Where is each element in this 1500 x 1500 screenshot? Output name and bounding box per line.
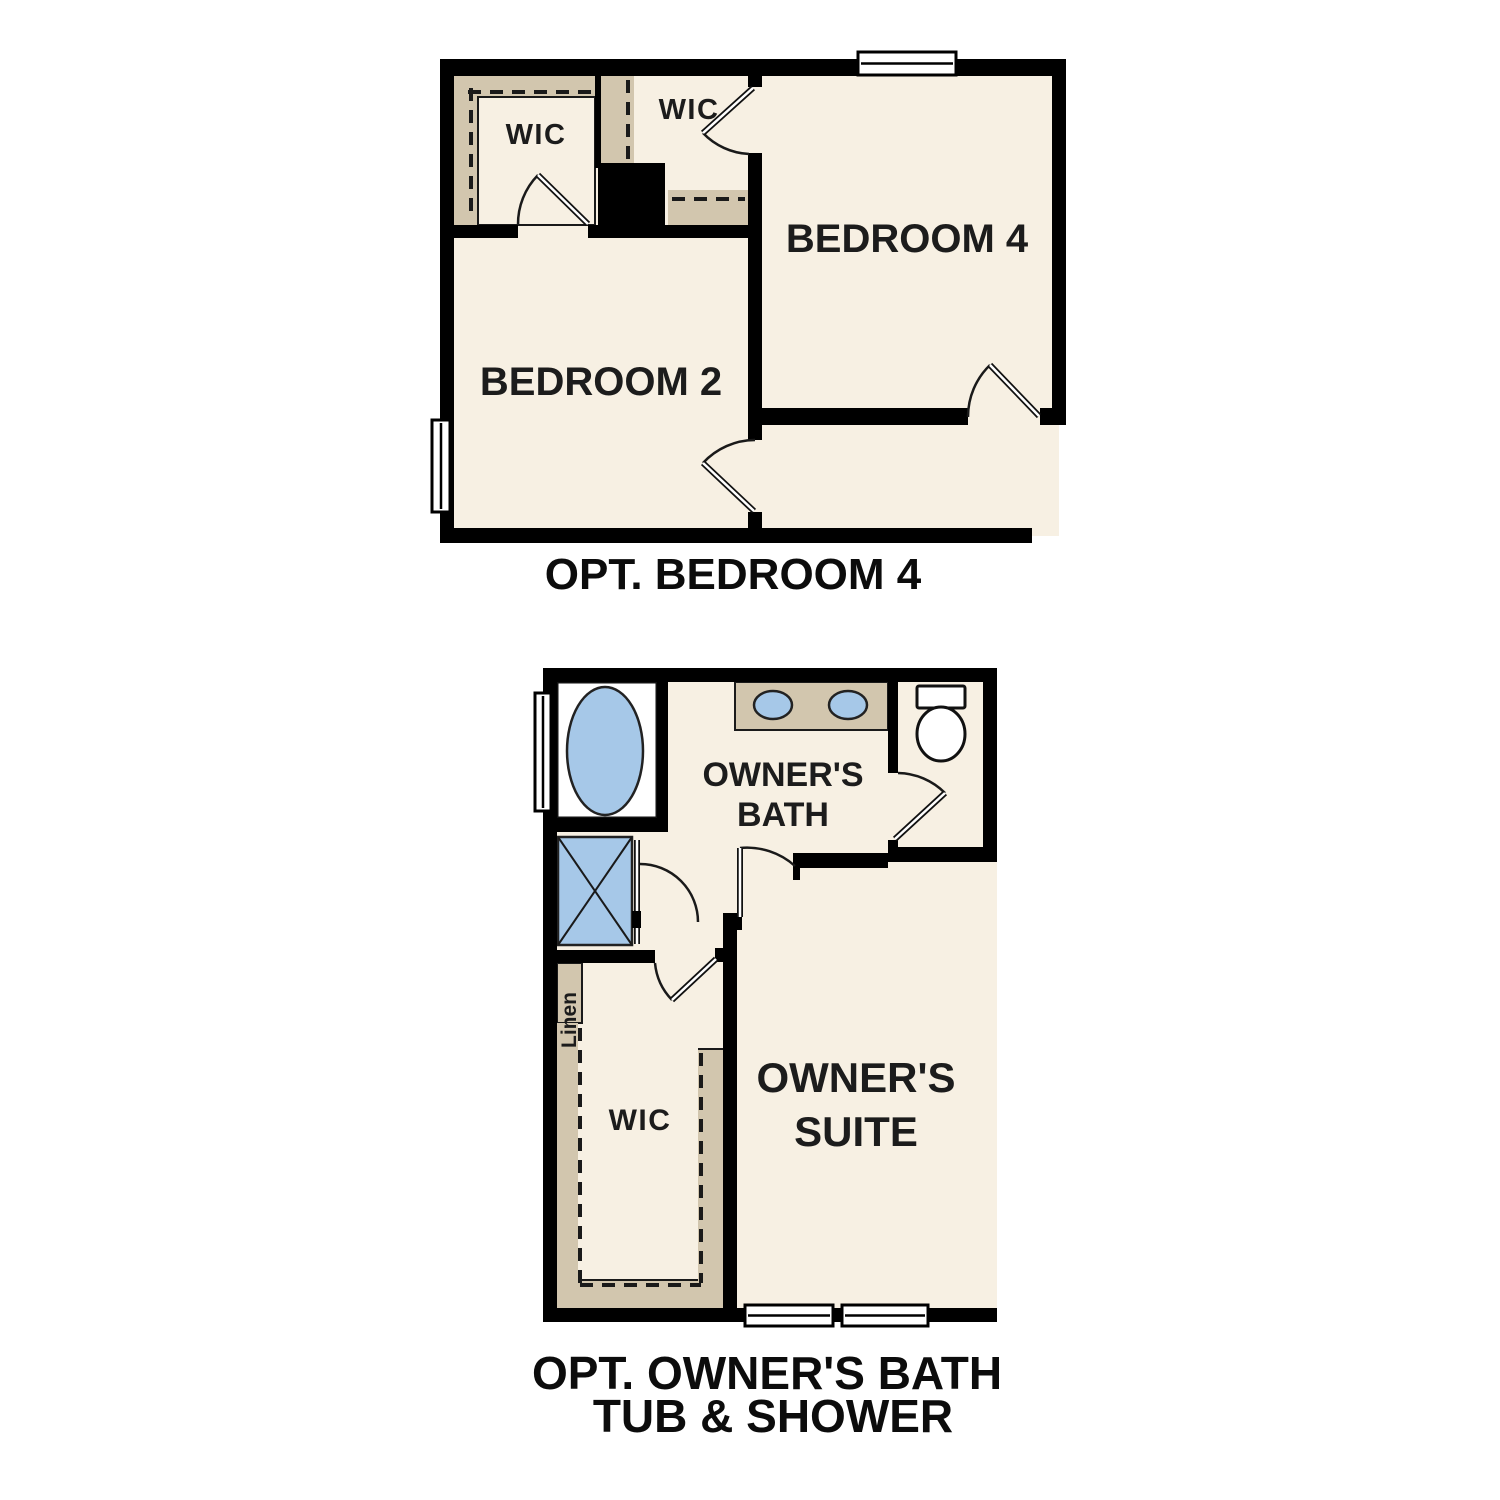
wic-right-shelf-bottom [668, 190, 748, 228]
wic-shelf-left [557, 1023, 578, 1308]
bathtub [557, 682, 657, 818]
wall-segment [657, 682, 668, 820]
bedroom2-label: BEDROOM 2 [480, 360, 722, 404]
linen-label: Linen [558, 992, 581, 1048]
wall-segment [983, 668, 997, 862]
window-left [432, 420, 450, 512]
bedroom4-label: BEDROOM 4 [786, 217, 1029, 261]
plan1-caption: OPT. BEDROOM 4 [545, 550, 922, 599]
owners-bath-label-line2: BATH [737, 796, 829, 834]
sink-right [829, 691, 867, 719]
toilet-tank [917, 686, 965, 708]
wall-segment [543, 1308, 745, 1322]
owners-suite-label-line2: SUITE [794, 1108, 918, 1155]
sink-left [754, 691, 792, 719]
wall-segment [440, 225, 518, 238]
shower-door-pivot [632, 911, 641, 928]
wall-segment [755, 408, 968, 425]
wall-segment [748, 59, 762, 87]
owners-bath-label-line1: OWNER'S [702, 756, 863, 794]
window-bottom-left [745, 1305, 833, 1326]
toilet [917, 686, 965, 761]
plan2-caption-line2: TUB & SHOWER [593, 1390, 953, 1442]
floorplan-opt-bedroom4: WIC WIC BEDROOM 2 BEDROOM 4 OPT. BEDROOM… [425, 45, 1075, 605]
wall-segment [715, 948, 737, 962]
wic-right-label: WIC [659, 94, 720, 126]
owners-suite-label-line1: OWNER'S [757, 1054, 956, 1101]
floorplan-opt-owners-bath: OWNER'S BATH OWNER'S SUITE WIC Linen OPT… [525, 655, 1005, 1455]
wic-label: WIC [609, 1104, 672, 1137]
wall-segment [1040, 408, 1052, 425]
wic-left-label: WIC [506, 119, 567, 151]
wall-segment [800, 853, 888, 868]
wall-segment [1052, 59, 1066, 425]
window-bottom-right [842, 1305, 928, 1326]
wic-left-floor [478, 97, 595, 225]
chase-column [598, 163, 665, 237]
wall-segment [888, 847, 997, 862]
floorplan-page: { "colors": { "background": "#ffffff", "… [0, 0, 1500, 1500]
wall-segment [723, 930, 737, 1322]
window-top [858, 52, 956, 75]
wall-segment [543, 818, 668, 832]
wall-segment [888, 682, 898, 773]
toilet-bowl [917, 707, 965, 761]
bathtub-basin [567, 687, 643, 815]
wall-segment [748, 512, 762, 543]
wall-segment [928, 1308, 997, 1322]
wall-segment [440, 528, 1032, 543]
wall-segment [595, 76, 601, 168]
wall-segment [543, 950, 655, 963]
vanity [735, 682, 888, 730]
wall-segment [543, 668, 997, 682]
window-left [535, 693, 551, 811]
wall-segment [748, 153, 762, 440]
